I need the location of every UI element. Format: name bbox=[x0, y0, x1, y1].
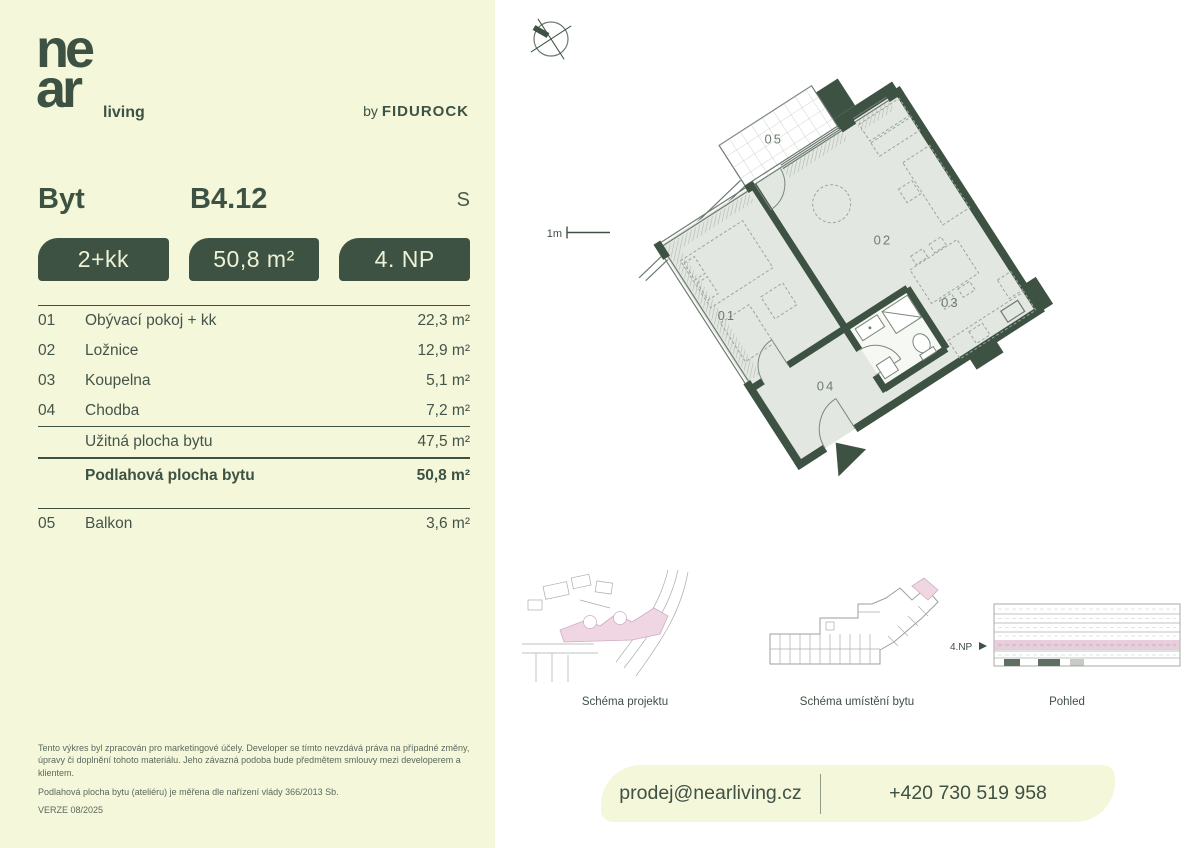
version-label: VERZE 08/2025 bbox=[38, 805, 103, 815]
legal-paragraph-2: Podlahová plocha bytu (ateliéru) je měře… bbox=[38, 786, 476, 798]
highlighted-project-footprint bbox=[560, 608, 668, 642]
scale-label: 1m bbox=[547, 228, 562, 240]
room-label-04: 04 bbox=[817, 379, 835, 394]
info-panel: ne ar living by FIDUROCK Byt B4.12 S 2+k… bbox=[0, 0, 495, 848]
room-label-01: 01 bbox=[718, 308, 736, 323]
floor-marker-arrow-icon bbox=[979, 642, 987, 650]
usable-area-label: Užitná plocha bytu bbox=[85, 433, 417, 451]
byline-brand: FIDUROCK bbox=[382, 103, 469, 120]
badge-layout: 2+kk bbox=[38, 238, 169, 281]
elevation-caption: Pohled bbox=[1012, 696, 1122, 708]
usable-area-row: Užitná plocha bytu 47,5 m² bbox=[38, 426, 470, 457]
floor-marker-label: 4.NP bbox=[950, 642, 973, 653]
table-row: 04 Chodba 7,2 m² bbox=[38, 396, 470, 426]
room-area: 5,1 m² bbox=[426, 372, 470, 390]
elevation-scheme: 4.NP bbox=[950, 600, 1190, 680]
table-row: 03 Koupelna 5,1 m² bbox=[38, 366, 470, 396]
room-number: 04 bbox=[38, 402, 85, 420]
logo-suffix: living bbox=[103, 104, 145, 122]
floor-area-value: 50,8 m² bbox=[417, 467, 470, 485]
north-arrow-icon bbox=[531, 19, 571, 59]
room-name: Obývací pokoj + kk bbox=[85, 312, 417, 330]
legal-paragraph-1: Tento výkres byl zpracován pro marketing… bbox=[38, 742, 476, 779]
room-area: 7,2 m² bbox=[426, 402, 470, 420]
unit-header: Byt B4.12 S bbox=[38, 183, 470, 215]
badge-floor: 4. NP bbox=[339, 238, 470, 281]
table-row: 01 Obývací pokoj + kk 22,3 m² bbox=[38, 305, 470, 336]
room-area: 12,9 m² bbox=[417, 342, 470, 360]
floor-area-row: Podlahová plocha bytu 50,8 m² bbox=[38, 457, 470, 493]
usable-area-value: 47,5 m² bbox=[417, 433, 470, 451]
contact-email[interactable]: prodej@nearliving.cz bbox=[601, 782, 820, 805]
contact-divider bbox=[820, 774, 821, 814]
room-name: Koupelna bbox=[85, 372, 426, 390]
room-area: 22,3 m² bbox=[417, 312, 470, 330]
unit-id: B4.12 bbox=[190, 183, 267, 216]
room-label-02: 02 bbox=[874, 232, 892, 247]
room-name: Ložnice bbox=[85, 342, 417, 360]
room-table: 01 Obývací pokoj + kk 22,3 m² 02 Ložnice… bbox=[38, 305, 470, 539]
apartment-plan: 01 02 03 04 05 bbox=[602, 40, 1069, 509]
developer-byline: by FIDUROCK bbox=[363, 103, 469, 120]
near-living-logo: ne ar bbox=[36, 30, 91, 110]
project-scheme-caption: Schéma projektu bbox=[540, 696, 710, 708]
unit-type-label: Byt bbox=[38, 183, 85, 216]
unit-badges: 2+kk 50,8 m² 4. NP bbox=[38, 238, 470, 281]
table-row: 02 Ložnice 12,9 m² bbox=[38, 336, 470, 366]
room-number: 01 bbox=[38, 312, 85, 330]
scale-bar: 1m bbox=[547, 227, 610, 241]
room-name: Balkon bbox=[85, 515, 426, 533]
room-area: 3,6 m² bbox=[426, 515, 470, 533]
project-scheme bbox=[520, 570, 735, 690]
room-number: 02 bbox=[38, 342, 85, 360]
badge-area: 50,8 m² bbox=[189, 238, 320, 281]
balcony-row: 05 Balkon 3,6 m² bbox=[38, 508, 470, 539]
location-scheme bbox=[762, 572, 962, 687]
room-number: 05 bbox=[38, 515, 85, 533]
contact-bar: prodej@nearliving.cz +420 730 519 958 bbox=[601, 765, 1115, 822]
contact-phone[interactable]: +420 730 519 958 bbox=[821, 782, 1115, 805]
byline-prefix: by bbox=[363, 103, 378, 119]
room-name: Chodba bbox=[85, 402, 426, 420]
legal-text: Tento výkres byl zpracován pro marketing… bbox=[38, 742, 476, 806]
floor-plan: 1m bbox=[500, 0, 1200, 560]
room-label-05: 05 bbox=[765, 131, 783, 146]
room-number: 03 bbox=[38, 372, 85, 390]
room-label-03: 03 bbox=[941, 295, 959, 310]
floorplan-sheet: { "brand": { "logo_line1": "ne", "logo_l… bbox=[0, 0, 1200, 848]
location-scheme-caption: Schéma umístění bytu bbox=[772, 696, 942, 708]
floor-area-label: Podlahová plocha bytu bbox=[85, 467, 417, 485]
orientation-label: S bbox=[457, 189, 470, 212]
